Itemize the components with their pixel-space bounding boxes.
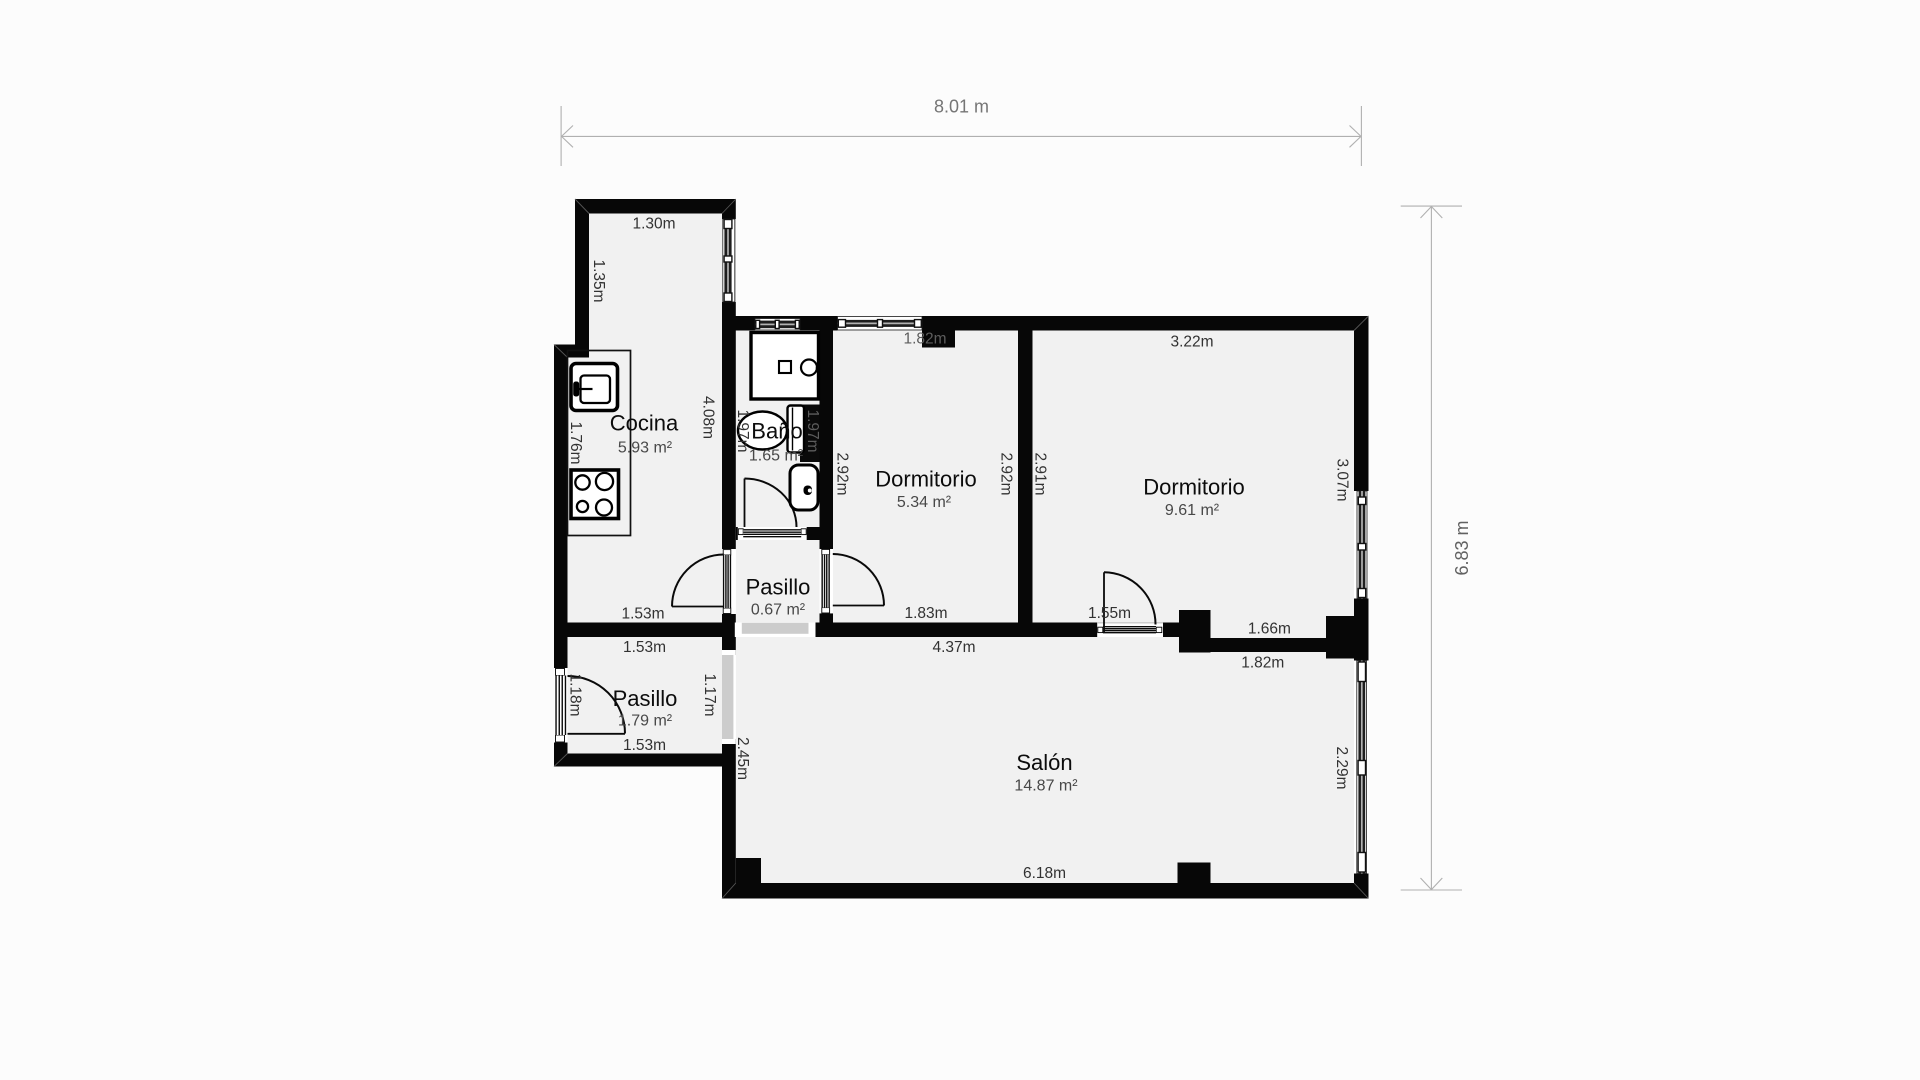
svg-text:2.29m: 2.29m (1333, 746, 1350, 789)
svg-text:1.66m: 1.66m (1248, 621, 1291, 638)
svg-text:1.55m: 1.55m (1088, 605, 1131, 622)
svg-text:1.35m: 1.35m (590, 259, 607, 302)
svg-text:2.45m: 2.45m (734, 737, 751, 780)
svg-text:1.83m: 1.83m (904, 605, 947, 622)
svg-text:2.92m: 2.92m (997, 452, 1014, 495)
svg-text:6.18m: 6.18m (1023, 865, 1066, 882)
svg-text:Baño: Baño (751, 419, 802, 444)
svg-text:Pasillo: Pasillo (613, 686, 678, 711)
svg-text:1.79 m²: 1.79 m² (618, 713, 673, 730)
svg-text:1.97m: 1.97m (804, 409, 821, 452)
svg-text:8.01 m: 8.01 m (934, 97, 989, 117)
svg-text:2.92m: 2.92m (833, 452, 850, 495)
svg-text:Salón: Salón (1016, 750, 1072, 775)
svg-text:1.82m: 1.82m (903, 331, 946, 348)
svg-text:9.61 m²: 9.61 m² (1165, 502, 1220, 519)
svg-text:Dormitorio: Dormitorio (1143, 475, 1244, 500)
svg-text:3.07m: 3.07m (1333, 458, 1350, 501)
svg-text:1.97m: 1.97m (734, 409, 751, 452)
svg-text:Pasillo: Pasillo (746, 575, 811, 600)
svg-text:1.53m: 1.53m (621, 606, 664, 623)
svg-text:1.76m: 1.76m (567, 421, 584, 464)
svg-text:14.87 m²: 14.87 m² (1014, 778, 1078, 795)
svg-text:5.34 m²: 5.34 m² (897, 494, 952, 511)
svg-text:4.08m: 4.08m (700, 396, 717, 439)
svg-text:Dormitorio: Dormitorio (875, 467, 976, 492)
svg-text:1.30m: 1.30m (632, 216, 675, 233)
svg-text:0.67 m²: 0.67 m² (751, 602, 806, 619)
svg-text:1.18m: 1.18m (566, 673, 583, 716)
svg-text:4.37m: 4.37m (932, 639, 975, 656)
svg-text:Cocina: Cocina (610, 411, 679, 436)
svg-text:1.53m: 1.53m (623, 737, 666, 754)
svg-text:1.17m: 1.17m (701, 673, 718, 716)
svg-text:1.53m: 1.53m (623, 639, 666, 656)
svg-text:1.82m: 1.82m (1241, 655, 1284, 672)
svg-text:6.83 m: 6.83 m (1452, 520, 1472, 575)
svg-text:1.65 m²: 1.65 m² (749, 448, 804, 465)
svg-text:2.91m: 2.91m (1031, 452, 1048, 495)
svg-text:3.22m: 3.22m (1170, 334, 1213, 351)
svg-text:5.93 m²: 5.93 m² (618, 440, 673, 457)
